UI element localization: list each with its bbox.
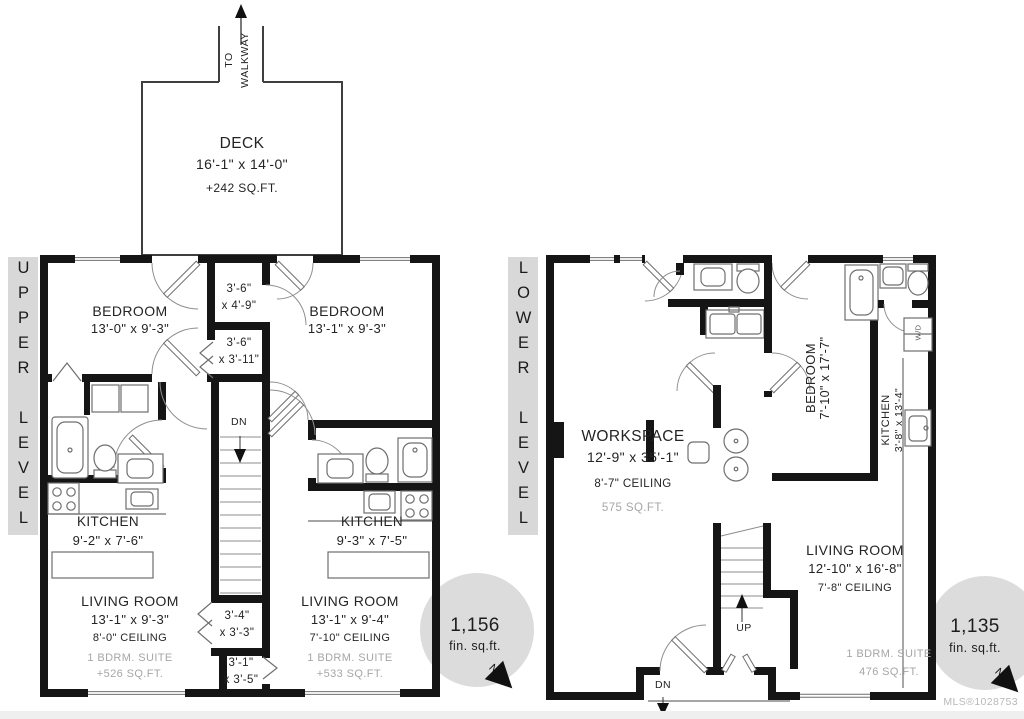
deck-label: DECK <box>162 135 322 154</box>
deck-door-right <box>275 261 313 299</box>
living-right-label: LIVING ROOM <box>270 593 430 610</box>
lower-entry-doors-bottom <box>657 625 756 716</box>
counter-left <box>52 552 153 578</box>
deck-door-left <box>152 261 200 309</box>
living-left-suite: 1 BDRM. SUITE <box>50 652 210 665</box>
living-left-dims: 13'-1" x 9'-3" <box>50 612 210 628</box>
bedroom-right-dims: 13'-1" x 9'-3" <box>267 321 427 337</box>
floorplan-page: UPPER LEVEL LOWER LEVEL <box>0 0 1024 719</box>
lower-bedroom-dims: 7'-10" x 17'-7" <box>818 337 833 420</box>
lower-living-ceiling: 7'-8" CEILING <box>775 582 935 595</box>
vanity-right <box>318 454 363 483</box>
vanity-left <box>118 454 163 483</box>
lower-living-label: LIVING ROOM <box>775 542 935 559</box>
upper-dn-label: DN <box>221 416 257 429</box>
lower-half-bath <box>654 263 772 338</box>
closet-bottom-left-dims: 3'-4" x 3'-3" <box>202 608 272 641</box>
upper-dn-arrow-icon <box>234 449 246 463</box>
walkway-label: TO WALKWAY <box>206 28 270 92</box>
upper-compass-unit: fin. sq.ft. <box>430 639 520 654</box>
lower-kitchen-label: KITCHEN 3'-8" x 13'-4" <box>878 365 908 475</box>
workspace-area: 575 SQ.FT. <box>553 500 713 517</box>
upper-right-suite <box>268 382 432 578</box>
living-right-suite: 1 BDRM. SUITE <box>270 652 430 665</box>
counter-right <box>328 552 429 578</box>
kitchen-left-dims: 9'-2" x 7'-6" <box>28 533 188 549</box>
closet-bottom-right-dims: 3'-1" x 3'-5" <box>206 655 276 688</box>
living-left-label: LIVING ROOM <box>50 593 210 610</box>
washer-icon <box>724 429 748 453</box>
lower-compass-unit: fin. sq.ft. <box>930 641 1020 656</box>
up-label: UP <box>730 622 758 635</box>
bedroom-left-dims: 13'-0" x 9'-3" <box>50 321 210 337</box>
lower-dn-label: DN <box>646 679 680 692</box>
footer-band <box>0 711 1024 719</box>
workspace-label: WORKSPACE <box>553 428 713 447</box>
bedroom-left-label: BEDROOM <box>50 303 210 320</box>
workspace-ceiling: 8'-7" CEILING <box>553 476 713 493</box>
lower-kitchen-dims: 3'-8" x 13'-4" <box>893 388 906 452</box>
lower-bath-toilet <box>908 264 928 271</box>
closet-top-dims: 3'-6" x 4'-9" <box>204 281 274 314</box>
dryer-icon <box>724 457 748 481</box>
lower-living-suite-area: 476 SQ.FT. <box>809 666 969 679</box>
closet-mid-dims: 3'-6" x 3'-11" <box>204 335 274 368</box>
lower-bedroom-label: BEDROOM 7'-10" x 17'-7" <box>795 318 841 438</box>
mls-number: MLS®1028753 <box>878 696 1018 709</box>
lower-compass-area: 1,135 <box>930 616 1020 639</box>
upper-compass-area: 1,156 <box>430 615 520 638</box>
workspace-dims: 12'-9" x 35'-1" <box>553 449 713 466</box>
toilet-right <box>366 474 388 482</box>
kitchen-right-label: KITCHEN <box>292 514 452 530</box>
kitchen-right-dims: 9'-3" x 7'-5" <box>292 533 452 549</box>
living-right-dims: 13'-1" x 9'-4" <box>270 612 430 628</box>
living-right-ceiling: 7'-10" CEILING <box>270 632 430 645</box>
lower-bedroom-door-top <box>772 261 810 299</box>
living-left-ceiling: 8'-0" CEILING <box>50 632 210 645</box>
upper-stairs-down <box>220 436 261 593</box>
kitchen-left-label: KITCHEN <box>28 514 188 530</box>
walkway-arrow-icon <box>235 4 247 18</box>
deck-dims: 16'-1" x 14'-0" <box>162 156 322 173</box>
lower-living-dims: 12'-10" x 16'-8" <box>775 561 935 577</box>
living-right-suite-area: +533 SQ.FT. <box>270 668 430 681</box>
lower-bedroom-name: BEDROOM <box>803 343 819 413</box>
washer-dryer-label: W/D <box>914 318 923 348</box>
lower-kitchen-name: KITCHEN <box>880 394 893 445</box>
bedroom-right-label: BEDROOM <box>267 303 427 320</box>
deck-area: +242 SQ.FT. <box>162 181 322 195</box>
living-left-suite-area: +526 SQ.FT. <box>50 668 210 681</box>
